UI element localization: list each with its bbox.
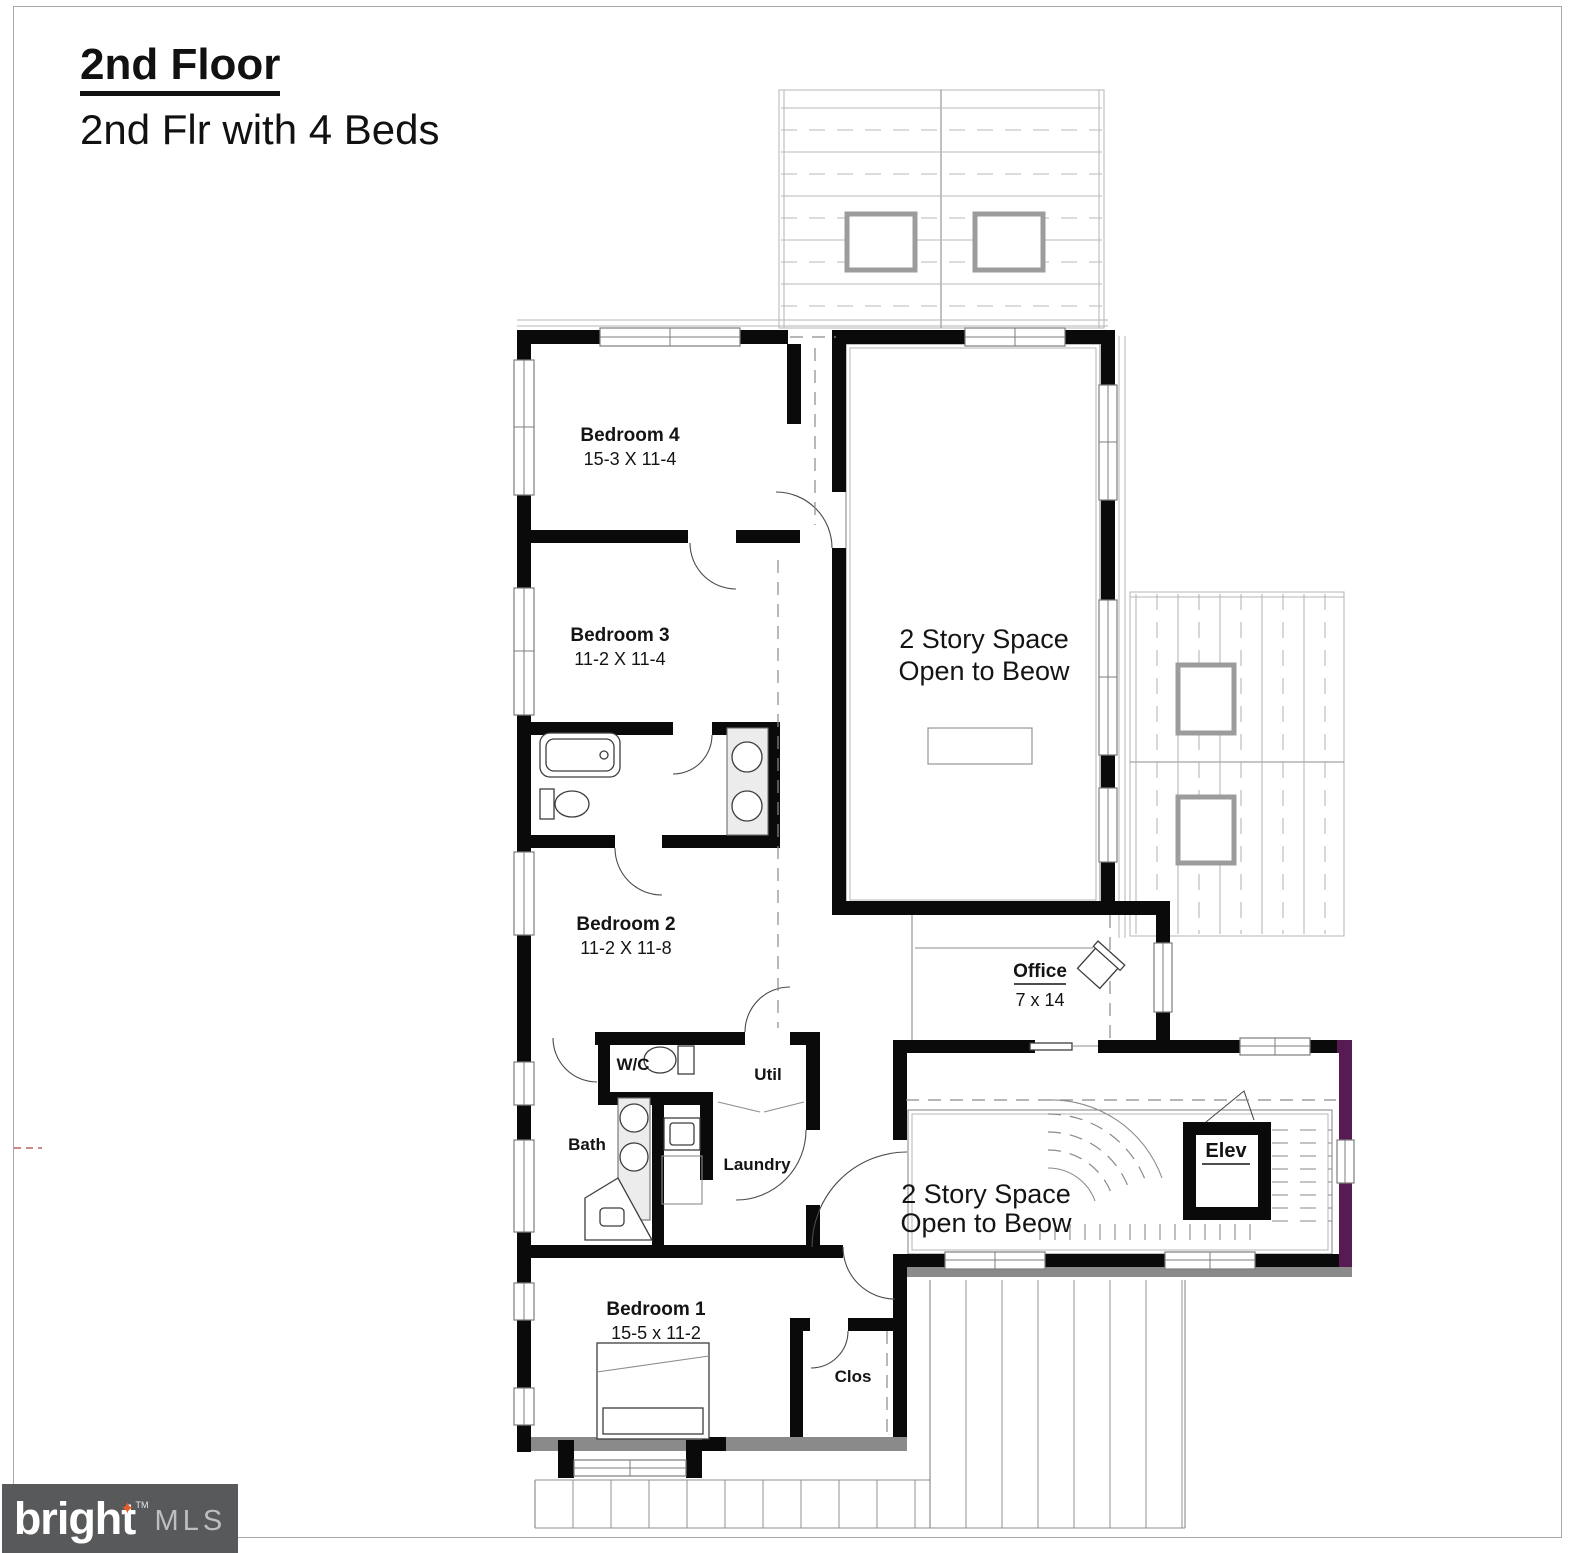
toilet-tank [540,789,554,819]
door-arc [553,1038,597,1082]
skylight [847,214,915,270]
sink [732,791,762,821]
skylight [1178,665,1234,733]
door-arc [745,987,790,1032]
sink [620,1104,648,1132]
room-dims-bedroom4: 15-3 X 11-4 [584,449,677,469]
laundry-counter [662,1156,702,1204]
floor-plan-drawing: Bedroom 4 15-3 X 11-4 Bedroom 3 11-2 X 1… [0,0,1574,1553]
elevator-door-flap [1206,1091,1254,1122]
logo-suffix-text: MLS [155,1505,227,1538]
toilet-tank [678,1046,694,1074]
room-label-bedroom3: Bedroom 3 [570,625,669,646]
stair-treads [1272,1130,1332,1221]
room-dims-bedroom3: 11-2 X 11-4 [574,649,665,669]
room-dims-office: 7 x 14 [1015,990,1064,1010]
purple-wall-segment [1339,1183,1352,1267]
logo-brand-text: bright [14,1484,135,1553]
purple-wall-segment [1339,1040,1352,1140]
brightmls-logo: bright ✦ TM MLS [2,1484,238,1553]
room-label-laundry: Laundry [723,1155,791,1174]
sink [620,1143,648,1171]
room-label-bedroom1: Bedroom 1 [606,1299,706,1320]
room-label-bath: Bath [568,1135,606,1154]
skylight [1178,797,1234,863]
tub-drain [600,751,608,759]
room-label-elev: Elev [1205,1140,1247,1162]
room-dims-bedroom1: 15-5 x 11-2 [611,1323,701,1343]
room-label-two-story-upper-1: 2 Story Space [899,624,1069,654]
skylight [975,214,1043,270]
door-arc [812,1152,907,1247]
door-arc [843,1247,895,1299]
roof-deck-top [517,90,1108,328]
roof-hatch-lines [1136,594,1325,934]
door-arc [690,543,736,589]
room-label-util: Util [754,1065,781,1084]
sink [732,742,762,772]
open-space-railings [846,344,1332,1254]
logo-trademark-text: TM [136,1500,149,1510]
room-label-two-story-lower-1: 2 Story Space [901,1179,1071,1209]
door-arc [673,735,712,774]
roof-deck-right [1119,336,1344,938]
logo-star-icon: ✦ [120,1499,134,1519]
room-label-bedroom2: Bedroom 2 [576,914,675,935]
room-label-two-story-upper-2: Open to Beow [898,656,1070,686]
room-label-two-story-lower-2: Open to Beow [900,1208,1072,1238]
deck-hatch-lines [930,1280,1182,1528]
room-label-wc: W/C [616,1055,649,1074]
room-label-clos: Clos [835,1367,872,1386]
deck-hatch-lines [535,1480,915,1528]
room-label-office: Office [1013,961,1067,982]
door-arc [615,848,662,895]
elevator [1183,1122,1271,1220]
floor-plan-page: 2nd Floor 2nd Flr with 4 Beds [0,0,1574,1553]
room-dims-bedroom2: 11-2 X 11-8 [580,938,671,958]
pocket-door [1030,1043,1072,1050]
door-arc [811,1331,848,1368]
room-label-bedroom4: Bedroom 4 [580,425,680,446]
purple-wall-segment [1337,1040,1352,1053]
toilet-bowl [555,791,589,817]
